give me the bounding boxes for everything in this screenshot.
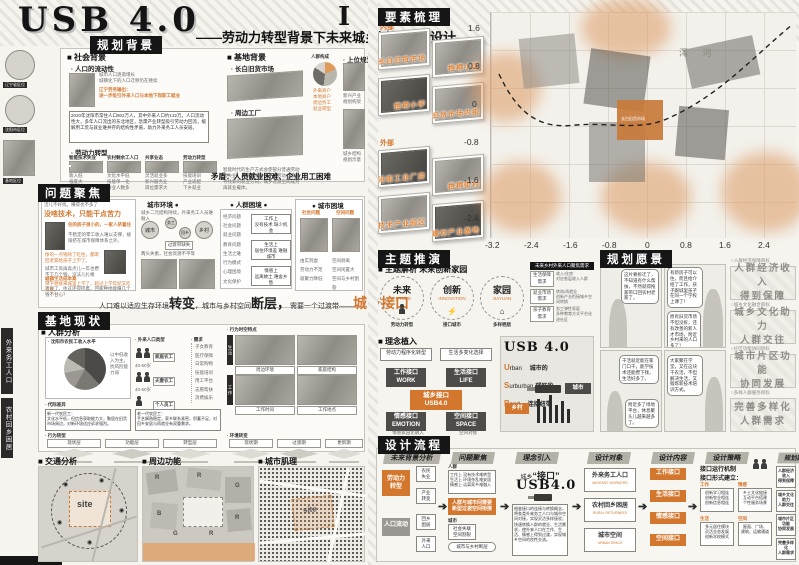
theme-en: FUTURE [381,296,423,301]
zone-letter: R [209,531,213,537]
usb-title: USB 4.0 [504,340,590,355]
flow-cause-3: 回乡 困居 [416,514,436,530]
city-space-title: 空间问题 [336,210,354,216]
theme-circle-future: 未来 FUTURE [380,276,424,320]
x-tick: -3.2 [485,240,500,250]
mobility-note: 城市人口逐渐增长 城镇化下的人口迁移仍在继续 [99,72,209,84]
interview-panel: 活儿不好找，赚得也不多了 没啥技术，只能干点苦力 住的房子很小的，一家人挤着住 … [41,199,136,291]
locator-map-city [5,95,35,125]
needs-row-tag: 孩子教育需求 [530,306,554,322]
interview-photo-2 [104,250,126,274]
bus-stop-icon: ◉ [87,539,92,546]
flow-note-4: 空间对接 [446,430,490,436]
poster-board: USB 4.0 ——劳动力转型背景下未来城乡过渡空间设计 I 辽宁省区位 沈阳市… [0,0,799,565]
behavior-cap-2: 功能层 [105,439,159,448]
x-tick: -2.4 [524,240,539,250]
section-problem-focus: 问题聚焦 [38,184,110,202]
needs-row-text: 转岗/再就业 创新产业衔接城乡空间转换 [556,289,594,306]
section-planning-background: 规划背景 [90,36,162,54]
flow-transition-box: 人群与城市间需要 新型过渡空间衔接 [448,498,496,515]
vision-mini-1: 人群经济收入 得到保障 [776,466,796,488]
figure-silhouette [703,289,723,348]
strategy-list-emotion: 乡土文化链接 互动平台搭建 个性服务场景 [738,488,772,512]
income-pie-chart [64,348,106,390]
spacetime-photo-2 [297,335,357,365]
section-vision: 规划愿景 [600,250,672,268]
traffic-map: site ◉ ◉ ◉ ◉ ◉ [38,466,138,562]
interview-hl1: 住的房子很小的，一家人挤着住 [68,222,134,228]
needs-col: · 需求 子女教育 医疗保障 日常购物 技能培训 用工平台 志愿帮扶 消费娱乐 [191,337,221,403]
flow-crowd-list: 工作上 没有技术难转型 生活上 环境杂乱难安居 情感上 远离家乡难融入 [448,470,496,494]
function-map: R R G B R G R [142,466,254,562]
usb-plug-pin [528,496,534,499]
city-social-title: 社会问题 [302,210,320,216]
upper-map-1 [343,63,365,91]
y-tick: -2.4 [464,213,479,223]
vision-text: 城市片区功能 协同发展 [731,350,795,393]
plug-icon: ⚡ [447,307,457,316]
theme-caption: 接口城市 [430,322,474,328]
city-dilemma-label: ● 城市困境 [312,200,362,210]
y-tick: -0.8 [464,137,479,147]
skyline-bar [537,399,540,423]
zone-block [146,469,179,495]
market-label: · 长白旧货市场 [231,63,274,73]
needs-row-text: 收入/住房 对应各层收入人群 [556,271,594,288]
object-name: 外来务工人口 [592,473,628,479]
env-gap-note: 过渡带缺失 [165,241,193,250]
zone-site-block [183,497,223,527]
vision-mini-4: 完善多样化 人群需求 [776,538,796,560]
income-pie-title: · 沈阳市农民工收入水平 [48,339,128,345]
figure-silhouette [705,377,723,432]
x-tick: -0.8 [602,240,617,250]
spacetime-cap-4: 工作地点 [297,406,357,415]
vision-mini-2: 城乡文化助力 人群交往 [776,490,796,512]
vision-caption: ○多样人群服务目标 [731,390,770,396]
object-en: MIGRANT WORKERS [586,481,634,486]
vision-text: 人群经济收入 得到保障 [731,262,795,305]
locator-caption-1: 辽宁省区位 [3,82,27,88]
interview-quote-main: 没啥技术，只能干点苦力 [44,209,133,219]
figure-silhouette [609,299,627,348]
strategy-h2: 接口形式建立： [700,473,742,482]
skyline-bar [543,407,546,423]
problem-conclusion: 人口难以适应生存环境转变，城市与乡村空间断层，需要一个过渡带——城乡接口 [99,293,361,313]
interview-p2: 挣的一点钱除了吃住，都寄回老家给孩子上学了。 [45,252,101,264]
city-social-list: 由实到虚 劳动力不足 吸聚力降低 [300,256,328,283]
crowd-dilemma-label: ● 人群困境 ● [230,199,292,209]
x-tick: -1.6 [563,240,578,250]
conclusion-t1: 人口难以适应生存环境 [99,303,169,310]
spacetime-col: · 行为时空特点 生活 周边环境 家庭结构 工作 工作时间 工作地点 [227,327,363,413]
bus-stop-icon: ◉ [119,507,124,514]
flow-labor-box: 劳动力 转型 [382,470,410,496]
flow-center-usb: 城乡接口 USB4.0 [410,390,462,410]
road-line [259,532,366,544]
behavior-cap-1: 现状层 [47,439,101,448]
skyline-bar [549,395,552,423]
usb-country-chip: 乡村 [505,403,529,414]
needs-table-row: 生活保障需求收入/住房 对应各层收入人群 [530,271,594,288]
vision-card-3: 城市片区功能 协同发展 [730,354,796,388]
flow-col-label-4: 设计对象 [587,452,631,464]
element-card-label: 梧桐小学 [394,99,426,112]
planning-background-box: ■ 社会背景 · 人口的流动性 城市人口逐渐增长 城镇化下的人口迁移仍在继续 辽… [60,48,365,182]
flow-space-port: 空间接口 SPACE [446,412,486,431]
needs-table-header: 未来乡村外来人口聚焦需求 [530,262,594,270]
vision-card-4: 完善多样化 人群需求 [730,398,796,432]
axon-diamond [327,449,361,459]
types-col: · 外来人口类型 家庭农工40-60岁 夫妻农工40-60岁 个人员工20-35… [135,337,187,401]
flow-col-label-3: 理念引入 [515,452,559,464]
element-card: 技术产业园区 [378,192,430,235]
zone-letter: R [197,473,201,479]
labor-group-2-photo [107,161,141,173]
concept-paragraph: 借鉴接口的连接与转换概念，将各类外来务工人口与城市空间对接，实现灵活多样接驳；快… [512,504,568,556]
upper-map-2 [343,109,365,149]
skyline-bar [567,409,570,423]
section-design-process: 设计流程 [378,436,450,454]
vision-mini-3: 城市片区功能 协同发展 [776,514,796,536]
income-pie-note: 以中低收入为主，抗风险能力弱 [110,352,130,376]
flow-population-box: 人口流动 [382,518,410,536]
vision-text: 城乡文化助力 人群交往 [731,306,795,349]
env-photo-1 [141,259,177,289]
photo-market [227,70,303,101]
labor-group-3: 共享业态 灵活就业多 新兴服务业 岗位需求大 [145,155,181,191]
labor-group-2: 农村剩余工人口 文化水平低 技能单一化 待业人数多 [107,155,143,191]
envchg-cap-3: 更新期 [325,439,363,448]
city-space-list: 空间剥离 空间闲置大 空间与乡村割裂 [332,256,362,292]
zone-letter: G [235,483,240,489]
content-port-2: 生活接口 [650,490,686,502]
theme-circle-innovation: 创新 INNOVATION ⚡ [430,276,474,320]
flow-arrow-icon: ➔ [688,500,697,513]
needs-row-tag: 就业市场需求 [530,289,554,305]
income-pie-box: · 沈阳市农民工收入水平 以中低收入为主，抗风险能力弱 [45,337,131,399]
zone-block [225,477,251,503]
theme-caption: 多样栖居 [480,322,524,328]
elements-external-label: 外部 [380,138,394,148]
person-icon [143,348,151,358]
strategy-h1: 接口运行机制 [700,464,736,473]
env-circle-work: 务工 [165,217,177,229]
usb-word: rban [510,366,522,372]
usb-line-1: Urban城市的 [504,357,590,375]
env-circle-city: 城市 [141,221,159,239]
interview-p1: 不稳定的零工收入难以支撑，被排挤在城市保障体系之外。 [68,232,134,244]
env-photo-2 [179,259,215,289]
locator-map-province [5,50,35,80]
flow-city-note: 城市与乡村断层 [448,542,496,552]
strategy-list-work: 创新学习相连 创新农业相连 创新信息相连 [700,488,734,512]
problem-focus-box: 活儿不好找，赚得也不多了 没啥技术，只能干点苦力 住的房子很小的，一家人挤着住 … [38,196,365,308]
generation-note-1: 新一代农民工： 文化水平低，但信息获取能力大，聚居在旧货市场周边，对新环境适应诉… [45,409,131,431]
section-theme: 主题推演 [378,250,450,268]
comic-panel-1: 这片要拆迁了，不知道有什么帮扶，不然就得拖家带口回农村老家了。 [600,264,662,348]
flow-cause-4: 外来 人口 [416,536,436,552]
city-dilemma-panel: ● 城市困境 社会问题 空间问题 由实到虚 劳动力不足 吸聚力降低 空间剥离 空… [295,199,363,291]
flow-col-label-5: 设计内容 [651,452,695,464]
object-name: 农村回乡困居 [592,503,628,509]
side-tab-migrant-workers: 外来务工人口 [1,328,13,394]
usb-plug-icon [534,494,552,501]
env-circle-village: 乡村 [195,221,213,239]
needs-row-tag: 生活保障需求 [530,271,554,287]
envchg-cap-2: 过渡期 [277,439,321,448]
concept-label: ■ 理念植入 [378,336,417,347]
crowd-box-work: 工作上 没有技术 缺少机会 [251,214,291,234]
section-site-status: 基地现状 [38,312,110,330]
urban-env-note2: 两头失衡，社会资源不平等 [141,251,195,257]
road-line [259,480,365,498]
labor-group-1-photo [69,161,103,173]
usb-plug-icon [535,385,561,393]
crowd-dilemma-list: 经济问题 社会问题 就业问题 教育问题 生活之难 行为模式 心理困境 文化保护 [223,212,247,286]
conclusion-t3: 需要一个过渡带—— [290,303,353,310]
spacetime-cap-2: 家庭结构 [297,366,357,375]
mechanism-icon [752,456,768,474]
usb-city-chip: 城市 [565,383,591,394]
flow-arrow-icon: ➔ [500,500,509,513]
flow-life-port: 生活接口 LIFE [446,368,486,387]
content-port-1: 工作接口 [650,468,686,480]
usb-plug-pin [527,387,535,391]
spacetime-photo-4 [297,375,357,405]
strategy-list-space: 屋面、广场、 建筑、运输通道 [738,522,772,546]
pie-crowd-tags: 外来商户 本地商户 周边务工 就业转型 [313,88,331,112]
y-tick: 0 [472,99,477,109]
object-box-1: 外来务工人口MIGRANT WORKERS [584,468,636,492]
person-icon [135,396,143,406]
y-tick: 1.6 [468,23,480,33]
comic-panel-2: 有新房子可以住，而且给介绍了工作，孩子跟城里孩子在同一个学校上课了！ 原有旧货市… [664,264,726,348]
upper-map-2-caption: 城乡结构规划示意 [343,151,365,163]
zone-letter: B [157,511,161,517]
site-bg-label: ■ 基地背景 [227,52,266,63]
crowd-box-emotion: 情感上 远离故土 难舍乡愁 [251,266,291,286]
speech-bubble: 干活就近能在家门口干，能学技术还能攒下钱，生活好多了。 [619,355,659,384]
interview-photo-1 [45,222,65,250]
bus-stop-icon: ◉ [99,477,104,484]
labor-group-3-list: 灵活就业多 新兴服务业 岗位需求大 [145,173,181,191]
flow-col-label-7: 规划愿景 [777,453,799,464]
envchg-col-3: 更新期 [325,439,363,465]
behavior-cap-3: 转型层 [163,439,217,448]
object-box-2: 农村回乡困居RURAL RETURNEES [584,498,636,522]
x-tick: 0.8 [680,240,692,250]
urban-env-panel: 城市环境 ● 城乡二元结构持续，外来务工人员难融入 城市 务工 回乡 乡村 过渡… [139,199,217,291]
upper-map-1-caption: 新兴产业规划构架 [343,93,365,105]
sheet-numeral: I [338,2,350,32]
city-space-photo [332,218,360,252]
y-tick: -1.6 [464,175,479,185]
zone-orange-strip [143,543,255,561]
conflict-statement: 矛盾：人员就业困难、企业用工困难 [211,171,331,182]
person-icon [398,304,406,314]
flow-arrow-icon: ➔ [438,500,447,513]
object-name: 城市空间 [598,533,622,539]
flow-col-label-2: 问题聚焦 [451,452,495,464]
flow-arrow-icon: ➔ [638,500,647,513]
type-row-1: 家庭农工40-60岁 [135,345,187,369]
mobility-highlight: 辽宁劳务输出： 进一步吸引外来人口与本地下岗职工就业 [99,87,209,99]
content-port-4: 空间接口 [650,534,686,546]
locator-map-site [3,140,35,176]
spacetime-cap-1: 周边环境 [235,366,295,375]
flow-col-label-6: 设计策略 [705,452,749,464]
site-status-box: ■ 人群分析 · 沈阳市农民工收入水平 以中低收入为主，抗风险能力弱 · 外来人… [38,324,365,452]
x-tick: 1.6 [719,240,731,250]
speech-bubble: 原有旧货市场不但没拆，还有改善的新人才市场，附近乡村来的人口多了！ [667,311,701,348]
x-tick: 2.4 [758,240,770,250]
crowd-box-life: 生活上 居住环境差 难融城市 [251,240,291,260]
labor-group-2-list: 文化水平低 技能单一化 待业人数多 [107,173,143,191]
skyline-bar [555,405,558,423]
zone-letter: R [155,475,159,481]
zone-block [150,502,178,530]
flow-note-1: 劳动力程序化转型 [380,348,432,361]
type-2-name: 夫妻农工 [153,377,175,386]
theme-cn: 未来 [381,283,423,296]
mobility-paragraph: 2020年沈阳市常住人口902万人，其中外来人口约132万。人口流动性大，多年人… [69,111,209,143]
crowd-dilemma-inner: 经济问题 社会问题 就业问题 教育问题 生活之难 行为模式 心理困境 文化保护 … [220,209,292,289]
concept-usb-wordmark: USB4.0 [516,478,576,493]
labor-group-2-title: 农村剩余工人口 [107,155,143,161]
vision-text: 完善多样化 人群需求 [734,401,792,430]
theme-cn: 创新 [431,283,473,296]
flow-arrow-icon: ➔ [572,500,581,513]
locator-caption-3: 基地区位 [3,178,23,184]
content-port-3: 情感接口 [650,512,686,524]
conclusion-b2: 断层， [251,296,290,311]
future-needs-table: 未来乡村外来人口聚焦需求 生活保障需求收入/住房 对应各层收入人群 就业市场需求… [530,262,594,328]
spacetime-cap-3: 工作时间 [235,406,295,415]
crowd-dilemma-panel: ● 人群困境 ● 经济问题 社会问题 就业问题 教育问题 生活之难 行为模式 心… [220,199,292,291]
factory-label: · 周边工厂 [231,107,261,117]
skyline-bar [561,401,564,423]
spacetime-life-tag: 生活 [227,335,233,365]
strategy-list-life: 多元居住模块 灵活业态发展 创新学校模式 [700,522,734,546]
section-elements: 要素梳理 [378,8,450,26]
side-tab-rural-return: 农村回乡困居 [1,398,13,458]
usb-cn: 城市的 [530,366,548,372]
theme-cn: 家园 [481,283,523,296]
home-icon: ⌂ [500,307,505,316]
pie-crowd-chart [313,62,337,86]
usb-definition-panel: USB 4.0 Urban城市的 Surburban郊区的 Bond连接纽带 城… [500,336,594,432]
element-card: 长白旧货市场 [378,28,430,71]
zone-block [186,467,222,490]
x-tick: 0 [645,240,650,250]
flow-emotion-port: 情感接口 EMOTION [386,412,426,431]
flow-work-port: 工作接口 WORK [386,368,426,387]
spacetime-label: · 行为时空特点 [227,327,363,333]
needs-list: 子女教育 医疗保障 日常购物 技能培训 用工平台 志愿帮扶 消费娱乐 [191,343,221,403]
river-label: 浑 河 [679,46,718,59]
theme-en: JIAYUAN [481,296,523,301]
flow-note-2: 生活多变化选择 [440,348,492,361]
vision-card-1: 人群经济收入 得到保障 [730,266,796,300]
city-social-photo [300,218,328,252]
needs-table-row: 孩子教育需求务工弹性家庭 多种教育方式平台化进社区 [530,306,594,323]
comic-panel-3: 干活就近能在家门口干，能学技术还能攒下钱，生活好多了。 附近多了绿地平台，休息聚… [600,350,662,432]
figure-silhouette [607,391,623,432]
theme-en: INNOVATION [431,296,473,301]
speech-bubble: 附近多了绿地平台，休息聚头儿越来越多了。 [625,399,659,428]
envchg-cap-1: 现状期 [229,439,273,448]
flow-cause-1: 农民 失业 [416,466,436,482]
types-label: · 外来人口类型 [135,337,187,343]
theme-caption: 劳动力转型 [380,322,424,328]
speech-bubble: 大家聚在学堂，又在这块干农活，不但解决生活，又锻炼新技术培训方式。 [667,355,703,396]
pie-crowd-title: 人群构成 [311,54,329,60]
generation-note-2: 老一代农民工： 手艺娴熟稳定，家乡联系紧密，积蓄不足，对回乡安居与再就业有双重需… [135,409,221,431]
spacetime-photo-1 [235,335,295,365]
poster-title: USB 4.0 [18,0,200,40]
zone-letter: R [235,515,239,521]
element-card: 沿街工业厂房 [378,146,430,189]
type-1-name: 家庭农工 [153,353,175,362]
person-icon [135,348,143,358]
river-dashed-path [491,12,797,238]
type-row-2: 夫妻农工40-60岁 [135,369,187,393]
comic-panel-4: 大家聚在学堂，又在这块干农活，不但解决生活，又锻炼新技术培训方式。 [664,350,726,432]
conclusion-b1: 转变 [169,296,195,311]
spacetime-photo-3 [235,375,295,405]
y-tick: 0.8 [468,61,480,71]
speech-bubble: 有新房子可以住，而且给介绍了工作，孩子跟城里孩子在同一个学校上课了！ [667,267,703,308]
object-en: URBAN SPACE [586,541,634,546]
object-box-3: 城市空间URBAN SPACE [584,528,636,552]
labor-group-3-photo [145,161,179,173]
person-icon [143,372,151,382]
bus-stop-icon: ◉ [57,519,62,526]
interview-p0: 活儿不好找，赚得也不多了 [44,202,133,208]
photo-mobility [69,73,95,107]
element-card: 梧桐小学 [378,74,430,117]
fabric-site-label: site [303,504,318,514]
spacetime-work-tag: 工作 [227,375,233,405]
env-circle-return: 回乡 [179,227,191,239]
photo-factory [227,115,303,159]
vision-card-2: 城乡文化助力 人群交往 [730,310,796,344]
generation-label: · 代际差异 [45,402,66,408]
element-coordinate-map: 长白旧货市场 浑 河 [490,12,796,238]
flow-city-list: 社会失联 空间割裂 [448,524,476,540]
object-en: RURAL RETURNEES [586,511,634,516]
urban-env-label: 城市环境 ● [147,199,217,209]
zone-letter: G [173,531,178,537]
needs-table-row: 就业市场需求转岗/再就业 创新产业衔接城乡空间转换 [530,289,594,306]
traffic-site-label: site [77,499,93,509]
fabric-map: site [258,466,365,562]
speech-bubble: 这片要拆迁了，不知道有什么帮扶，不然就得拖家带口回农村老家了。 [621,269,659,304]
conclusion-t2: ，城市与乡村空间 [195,303,251,310]
locator-caption-2: 沈阳市区位 [3,127,27,133]
needs-row-text: 务工弹性家庭 多种教育方式平台化进社区 [556,306,594,323]
person-icon [135,372,143,382]
theme-circle-home: 家园 JIAYUAN ⌂ [480,276,524,320]
flow-cause-2: 产业 转变 [416,488,436,504]
bus-stop-icon: ◉ [63,481,68,488]
